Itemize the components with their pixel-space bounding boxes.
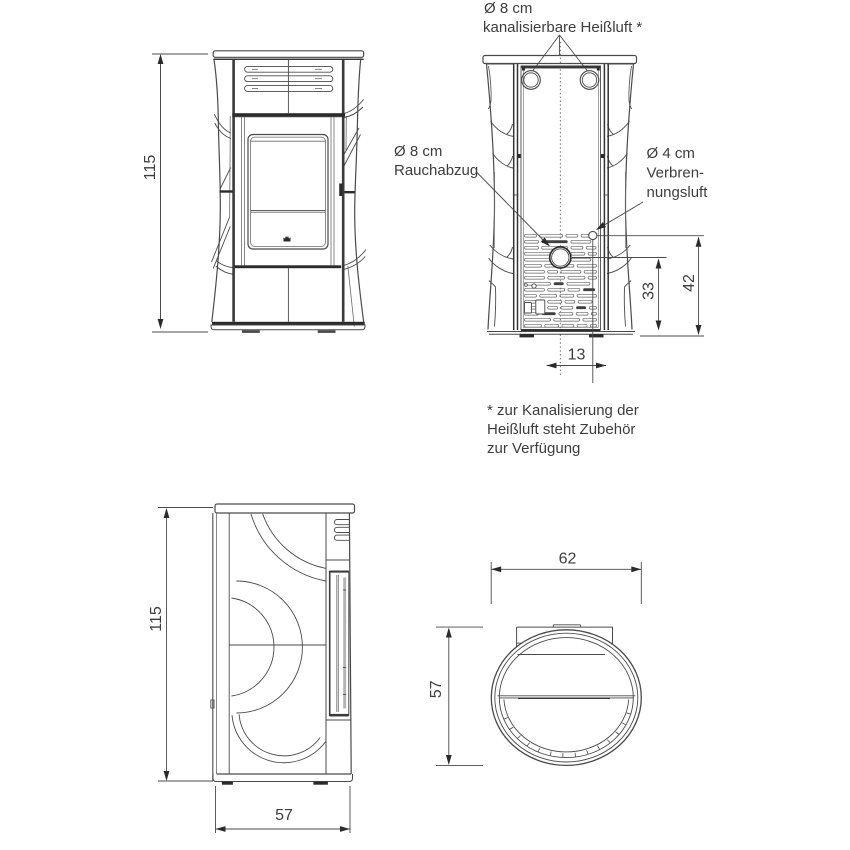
svg-text:13: 13 [568,347,586,364]
svg-text:33: 33 [641,282,658,300]
svg-text:Rauchabzug: Rauchabzug [394,162,478,179]
svg-text:Ø 8 cm: Ø 8 cm [484,0,532,17]
svg-text:115: 115 [148,606,165,632]
svg-text:Heißluft steht Zubehör: Heißluft steht Zubehör [487,421,635,438]
svg-text:Ø 8 cm: Ø 8 cm [394,143,442,160]
svg-text:115: 115 [142,155,159,181]
svg-text:57: 57 [428,680,445,698]
svg-text:57: 57 [275,807,293,824]
svg-text:zur Verfügung: zur Verfügung [487,440,580,457]
svg-text:* zur Kanalisierung der: * zur Kanalisierung der [487,402,639,419]
svg-text:nungsluft: nungsluft [647,184,709,201]
svg-text:Ø 4 cm: Ø 4 cm [647,145,695,162]
svg-text:62: 62 [559,551,577,568]
svg-text:Verbren-: Verbren- [647,165,705,182]
svg-text:42: 42 [681,274,698,292]
svg-text:kanalisierbare Heißluft *: kanalisierbare Heißluft * [483,19,642,36]
